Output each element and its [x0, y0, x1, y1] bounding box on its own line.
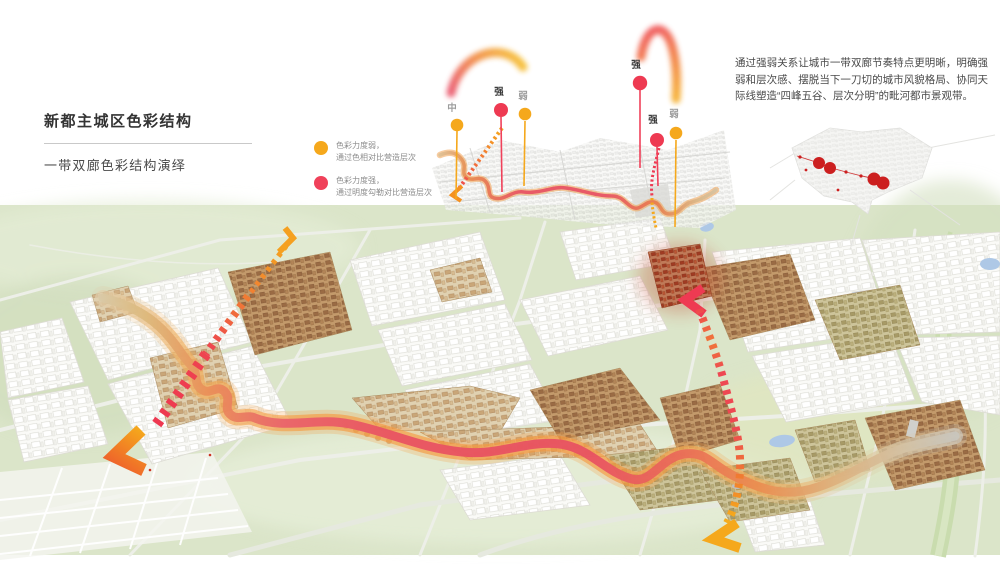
pin-label: 弱 [518, 91, 528, 102]
title-block: 新都主城区色彩结构 一带双廊色彩结构演绎 [44, 110, 259, 174]
west-strength-arc [451, 53, 523, 93]
pin-label: 强 [494, 87, 504, 98]
pin-label: 弱 [669, 109, 679, 120]
pin-label: 中 [447, 102, 457, 114]
page-subtitle: 一带双廊色彩结构演绎 [44, 155, 259, 174]
red-dot-icon [314, 176, 328, 190]
legend-text-strong: 色彩力度强， 通过明度勾勒对比营造层次 [336, 175, 432, 199]
legend-item-strong: 色彩力度强， 通过明度勾勒对比营造层次 [314, 175, 432, 199]
main-map [0, 180, 1000, 560]
title-divider [44, 143, 252, 144]
legend-item-weak: 色彩力度弱， 通过色相对比营造层次 [314, 140, 432, 164]
red-highlight-cluster [638, 242, 722, 314]
pin-label: 强 [648, 115, 658, 126]
rhythm-inset-map: 中 强 弱 强 强 [432, 30, 736, 228]
yellow-dot-icon [314, 141, 328, 155]
east-strength-arc [641, 30, 677, 99]
legend: 色彩力度弱， 通过色相对比营造层次 色彩力度强， 通过明度勾勒对比营造层次 [314, 140, 432, 199]
description-text: 通过强弱关系让城市一带双廊节奏特点更明晰，明确强弱和层次感、摆脱当下一刀切的城市… [735, 55, 988, 105]
slide-color-structure: 中 强 弱 强 强 [0, 0, 1000, 567]
page-title: 新都主城区色彩结构 [44, 110, 259, 131]
legend-text-weak: 色彩力度弱， 通过色相对比营造层次 [336, 140, 416, 164]
pin-label: 强 [631, 60, 641, 71]
